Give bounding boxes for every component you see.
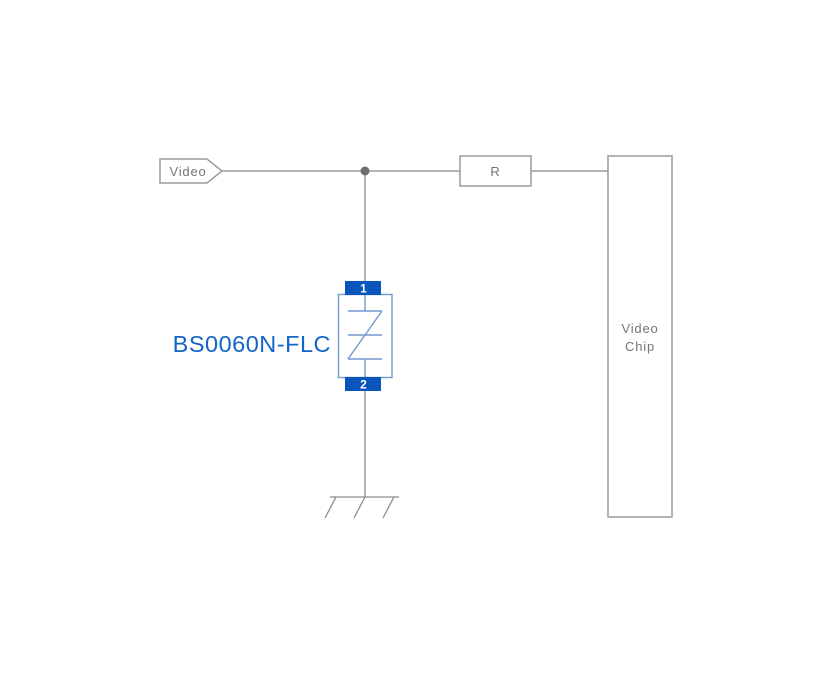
tvs-pin1-label: 1	[360, 282, 367, 296]
resistor-label: R	[490, 164, 500, 179]
resistor: R	[460, 156, 531, 186]
schematic-canvas: Video R Video Chip 1 2 BS0060N-FLC	[0, 0, 832, 675]
tvs-part-number: BS0060N-FLC	[173, 331, 331, 357]
video-chip-box	[608, 156, 672, 517]
video-chip-label-line2: Chip	[625, 339, 655, 354]
video-chip-label-line1: Video	[621, 321, 658, 336]
video-net-connector: Video	[160, 159, 222, 183]
junction-dot	[361, 167, 370, 176]
circuit-diagram: Video R Video Chip 1 2 BS0060N-FLC	[0, 0, 832, 675]
tvs-pin2-label: 2	[360, 378, 367, 392]
ground-symbol	[325, 497, 399, 518]
tvs-diode: 1 2 BS0060N-FLC	[173, 281, 392, 392]
ground-symbol-lines	[325, 497, 399, 518]
video-net-label: Video	[169, 164, 206, 179]
video-chip: Video Chip	[608, 156, 672, 517]
